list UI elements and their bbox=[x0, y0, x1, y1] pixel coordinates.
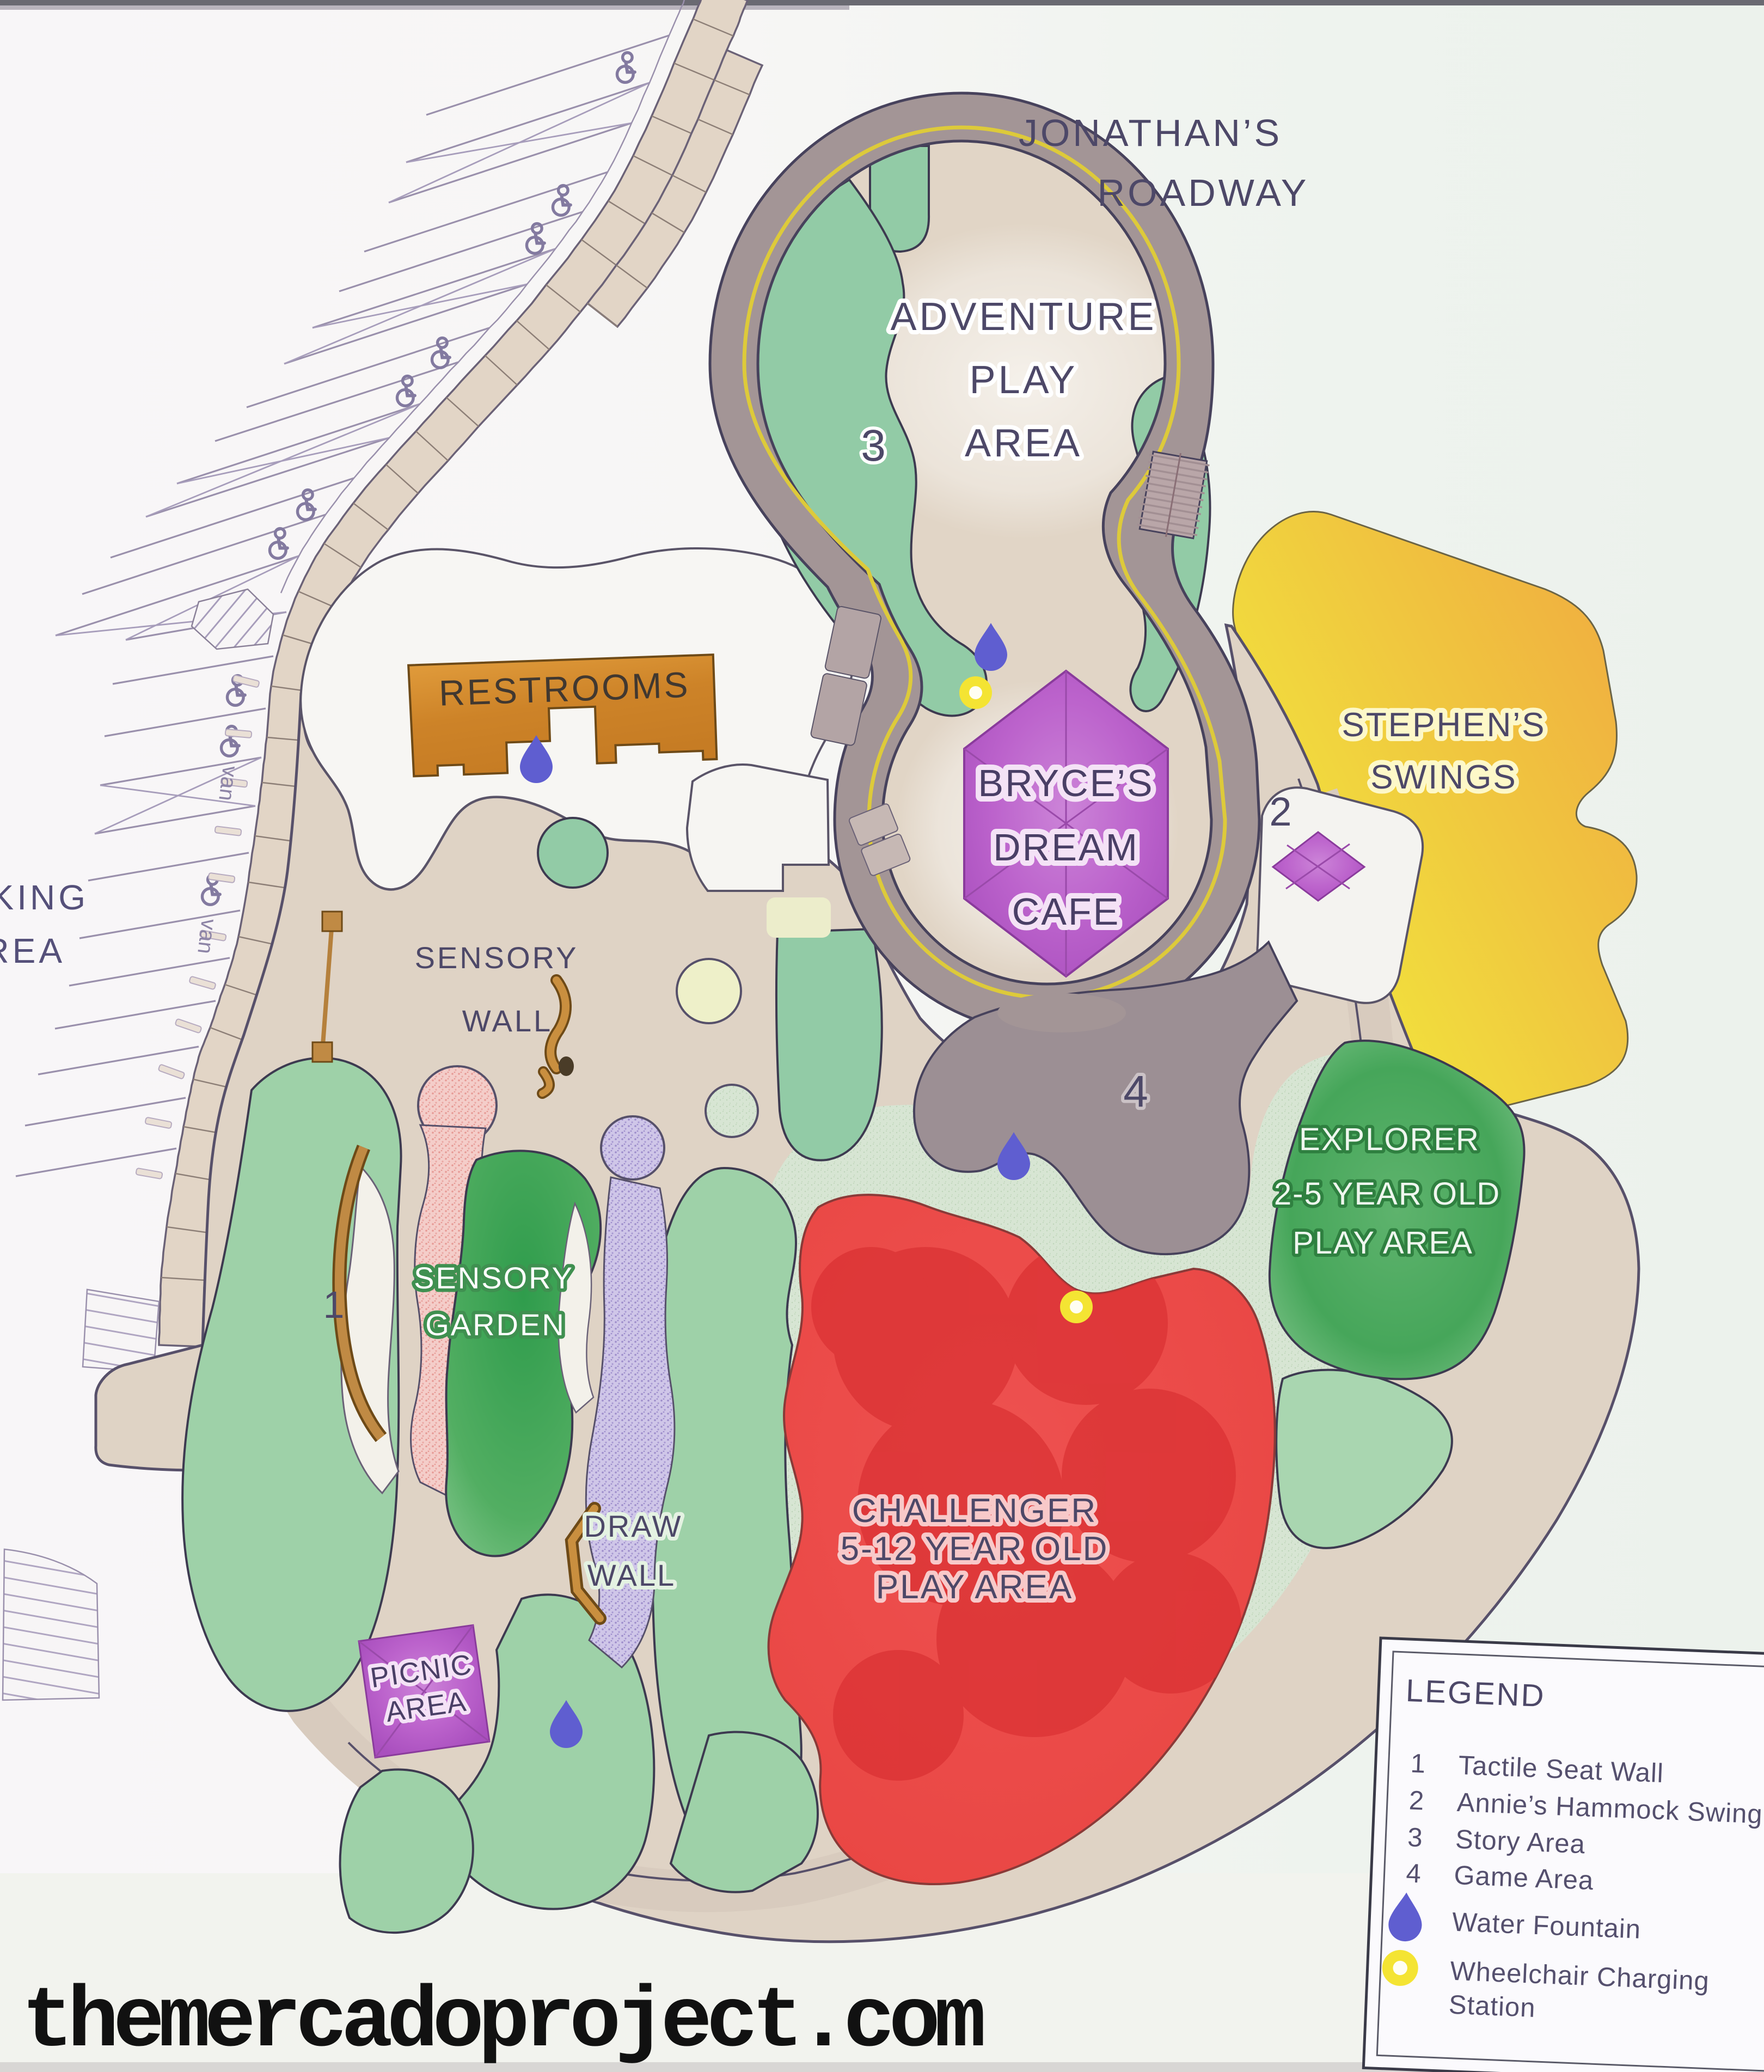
svg-text:SENSORY: SENSORY bbox=[415, 940, 579, 975]
svg-text:van: van bbox=[193, 918, 221, 955]
svg-text:JONATHAN’S: JONATHAN’S bbox=[1019, 112, 1282, 154]
svg-text:STEPHEN’S: STEPHEN’S bbox=[1342, 706, 1546, 744]
svg-text:2-5 YEAR OLD: 2-5 YEAR OLD bbox=[1274, 1176, 1500, 1212]
svg-text:themercadoproject.com: themercadoproject.com bbox=[22, 1974, 983, 2071]
svg-text:ADVENTURE: ADVENTURE bbox=[890, 295, 1156, 339]
svg-text:GARDEN: GARDEN bbox=[425, 1307, 566, 1342]
svg-text:Game Area: Game Area bbox=[1454, 1861, 1595, 1896]
svg-text:van: van bbox=[214, 765, 242, 802]
svg-text:LEGEND: LEGEND bbox=[1405, 1673, 1546, 1714]
svg-text:3: 3 bbox=[1407, 1823, 1423, 1853]
svg-text:PLAY AREA: PLAY AREA bbox=[876, 1568, 1073, 1606]
svg-text:EXPLORER: EXPLORER bbox=[1299, 1122, 1480, 1157]
svg-text:DREAM: DREAM bbox=[993, 826, 1139, 869]
svg-text:CAFE: CAFE bbox=[1012, 890, 1120, 933]
svg-text:2: 2 bbox=[1269, 789, 1291, 834]
svg-text:AREA: AREA bbox=[965, 421, 1082, 465]
svg-text:3: 3 bbox=[861, 421, 886, 470]
svg-text:SWINGS: SWINGS bbox=[1370, 759, 1517, 796]
svg-text:1: 1 bbox=[323, 1283, 345, 1326]
svg-text:4: 4 bbox=[1123, 1067, 1148, 1116]
svg-text:WALL: WALL bbox=[587, 1558, 676, 1592]
svg-text:WALL: WALL bbox=[462, 1004, 553, 1038]
svg-text:BRYCE’S: BRYCE’S bbox=[978, 762, 1154, 804]
svg-text:SENSORY: SENSORY bbox=[414, 1261, 574, 1295]
svg-text:DRAW: DRAW bbox=[584, 1509, 682, 1543]
svg-text:CHALLENGER: CHALLENGER bbox=[852, 1492, 1097, 1530]
svg-text:ROADWAY: ROADWAY bbox=[1098, 172, 1309, 214]
svg-text:PLAY AREA: PLAY AREA bbox=[1293, 1225, 1473, 1261]
svg-text:5-12 YEAR OLD: 5-12 YEAR OLD bbox=[841, 1530, 1109, 1568]
svg-text:1: 1 bbox=[1410, 1749, 1426, 1778]
svg-text:4: 4 bbox=[1406, 1859, 1422, 1888]
svg-text:2: 2 bbox=[1408, 1786, 1424, 1816]
svg-text:PLAY: PLAY bbox=[970, 358, 1078, 402]
svg-text:AREA: AREA bbox=[0, 931, 65, 970]
svg-text:Station: Station bbox=[1448, 1990, 1536, 2023]
svg-text:Story Area: Story Area bbox=[1455, 1825, 1586, 1860]
svg-text:PARKING: PARKING bbox=[0, 878, 89, 917]
